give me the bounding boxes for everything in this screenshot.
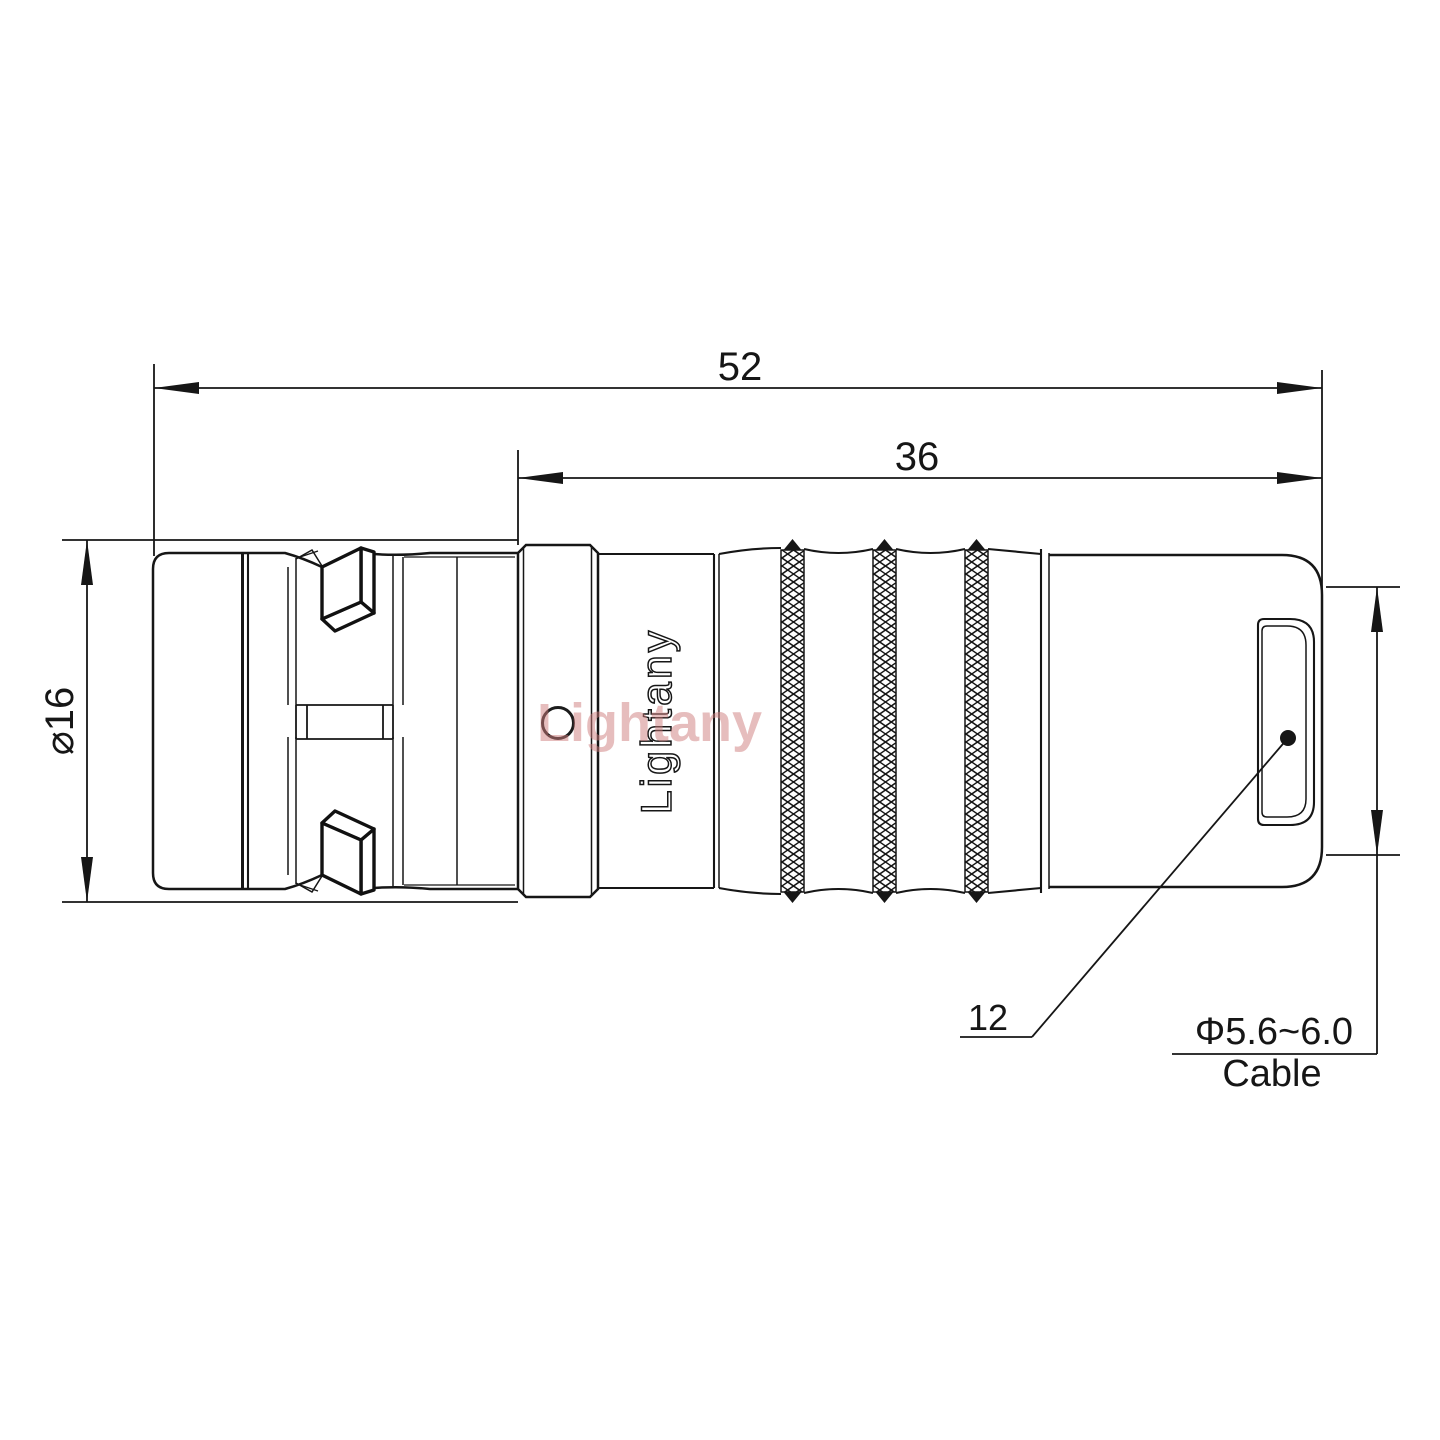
dimension-front-diameter: ⌀16	[38, 540, 518, 902]
knurl-band	[781, 539, 804, 903]
watermark-text: Lightany	[537, 693, 762, 753]
dim-12-label: 12	[968, 997, 1008, 1038]
dim-36-label: 36	[895, 435, 940, 479]
connector-technical-drawing: Lightany	[0, 0, 1440, 1440]
dimension-overall-length: 52	[154, 345, 1322, 589]
cable-bushing	[1258, 619, 1314, 825]
cable-range-label: Φ5.6~6.0	[1195, 1011, 1353, 1053]
front-shell	[153, 548, 518, 894]
cable-note: Φ5.6~6.0 Cable	[1172, 1011, 1377, 1095]
rear-sleeve	[1049, 555, 1322, 887]
knurl-band	[873, 539, 896, 903]
drawing-svg: Lightany	[0, 0, 1440, 1440]
dim-16-label: ⌀16	[38, 687, 82, 756]
dim-52-label: 52	[718, 345, 763, 389]
bayonet-slot-window	[296, 705, 393, 739]
dimension-rear-length: 36	[518, 435, 1322, 545]
dimension-rear-diameter: 12	[960, 587, 1400, 1054]
knurl-section	[719, 539, 1049, 903]
cable-word-label: Cable	[1222, 1053, 1321, 1095]
knurl-band	[965, 539, 988, 903]
